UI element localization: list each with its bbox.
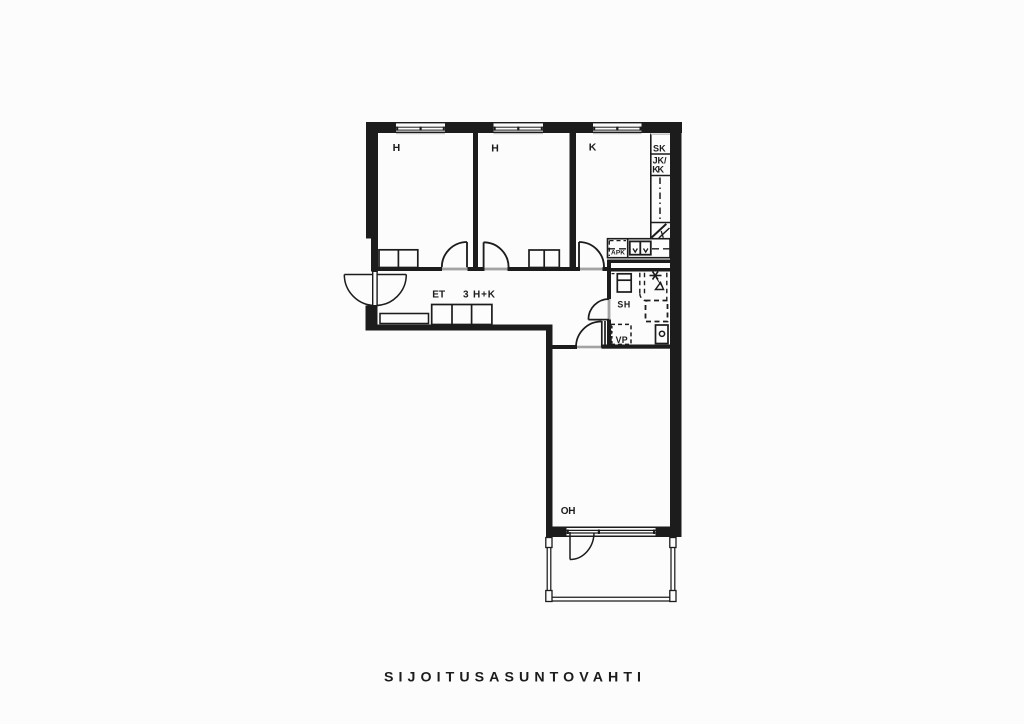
svg-text:H: H [491,142,499,154]
svg-text:SH: SH [617,300,630,310]
svg-text:H: H [393,142,401,154]
svg-text:SK: SK [653,143,666,153]
svg-text:OH: OH [561,506,576,517]
svg-text:ET: ET [432,289,445,300]
svg-text:3 H+K: 3 H+K [463,289,496,300]
svg-text:K: K [589,142,597,154]
svg-text:KK: KK [652,164,664,174]
svg-text:SIJOITUSASUNTOVAHTI: SIJOITUSASUNTOVAHTI [384,669,646,685]
svg-text:APK: APK [611,250,625,257]
svg-text:VP: VP [616,335,628,345]
